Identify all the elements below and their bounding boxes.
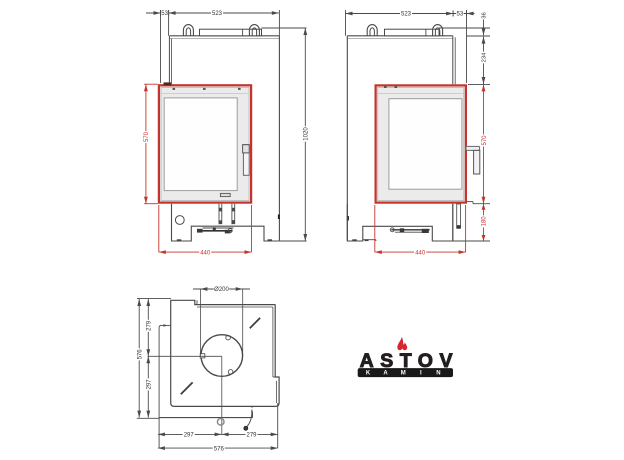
svg-text:180: 180: [482, 216, 488, 227]
svg-text:576: 576: [214, 446, 225, 452]
svg-text:1020: 1020: [303, 127, 309, 141]
svg-text:279: 279: [146, 320, 152, 331]
svg-text:53: 53: [161, 11, 168, 17]
svg-text:M: M: [401, 371, 406, 377]
svg-text:53: 53: [457, 12, 464, 18]
svg-text:36: 36: [482, 12, 488, 18]
svg-text:279: 279: [246, 433, 257, 439]
svg-text:570: 570: [144, 131, 150, 142]
svg-text:297: 297: [184, 433, 195, 439]
svg-text:440: 440: [200, 250, 211, 256]
svg-text:576: 576: [137, 349, 143, 360]
svg-text:234: 234: [482, 52, 488, 62]
svg-text:297: 297: [146, 379, 152, 390]
svg-text:523: 523: [401, 12, 412, 18]
svg-text:Ø200: Ø200: [214, 287, 229, 293]
svg-text:440: 440: [415, 250, 426, 256]
svg-text:523: 523: [212, 11, 223, 17]
svg-text:570: 570: [482, 135, 488, 146]
svg-text:N: N: [436, 371, 440, 377]
svg-text:K: K: [366, 371, 371, 377]
svg-text:A: A: [383, 371, 388, 377]
